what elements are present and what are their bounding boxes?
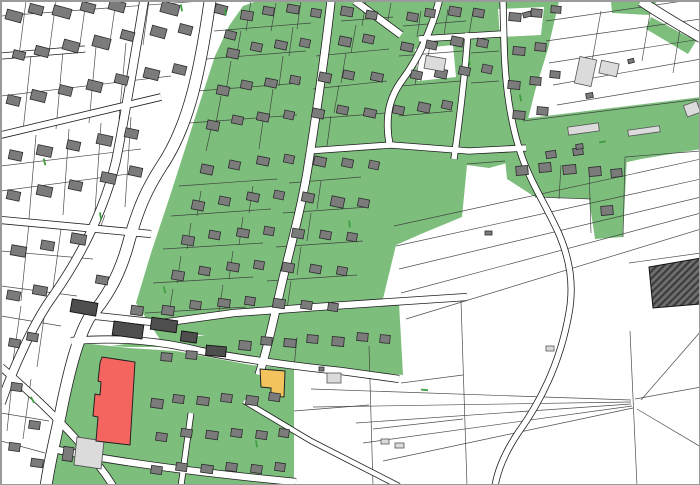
- building-footprint-dark: [206, 345, 227, 357]
- building-footprint: [380, 335, 391, 344]
- building-footprint: [300, 300, 312, 309]
- building-footprint: [255, 430, 267, 439]
- building-footprint: [230, 428, 242, 437]
- building-footprint: [417, 102, 431, 113]
- building-footprint: [130, 305, 143, 316]
- building-footprint: [268, 392, 280, 401]
- building-footprint: [8, 338, 20, 348]
- building-footprint: [336, 105, 348, 115]
- building-footprint: [273, 190, 284, 200]
- building-footprint: [226, 262, 239, 272]
- building-footprint: [95, 275, 108, 285]
- building-footprint: [191, 200, 205, 211]
- building-footprint: [231, 115, 243, 125]
- building-footprint: [289, 75, 300, 85]
- building-footprint: [330, 196, 345, 208]
- building-footprint: [272, 298, 285, 309]
- building-footprint: [262, 6, 274, 16]
- building-footprint: [172, 394, 184, 403]
- building-footprint: [424, 8, 435, 18]
- building-footprint: [513, 46, 526, 55]
- building-footprint: [362, 34, 374, 44]
- building-footprint: [28, 420, 40, 429]
- building-footprint: [551, 6, 562, 14]
- building-footprint: [70, 233, 87, 245]
- building-footprint: [8, 442, 20, 451]
- building-footprint: [31, 458, 44, 468]
- building-footprint: [244, 296, 255, 305]
- building-footprint: [189, 300, 201, 309]
- building-footprint: [245, 395, 258, 406]
- building-footprint: [425, 40, 437, 50]
- building-footprint: [458, 66, 470, 76]
- building-footprint: [180, 428, 192, 437]
- building-footprint: [472, 8, 484, 18]
- building-footprint: [200, 164, 214, 175]
- building-footprint: [342, 70, 354, 80]
- building-footprint: [450, 36, 464, 47]
- building-footprint: [171, 270, 184, 281]
- building-footprint: [310, 8, 321, 18]
- building-footprint: [26, 332, 38, 342]
- building-footprint: [341, 158, 353, 168]
- building-footprint: [236, 228, 249, 238]
- building-footprint: [550, 71, 561, 79]
- building-footprint: [150, 465, 162, 474]
- building-footprint: [228, 160, 240, 170]
- building-footprint: [239, 340, 252, 350]
- building-footprint: [250, 42, 262, 52]
- building-footprint: [586, 92, 594, 98]
- building-footprint: [576, 143, 584, 149]
- building-footprint-light: [546, 346, 554, 351]
- building-footprint: [253, 260, 264, 270]
- building-footprint: [365, 10, 377, 20]
- building-footprint-light: [381, 439, 389, 444]
- building-footprint: [201, 464, 214, 474]
- building-footprint: [485, 231, 492, 235]
- building-footprint: [563, 164, 577, 174]
- building-footprint: [250, 464, 262, 473]
- building-footprint: [530, 77, 542, 86]
- building-footprint-light: [327, 373, 341, 383]
- building-footprint: [286, 4, 299, 14]
- building-footprint: [539, 162, 552, 172]
- building-footprint: [476, 38, 488, 48]
- map-viewport[interactable]: [0, 0, 700, 485]
- building-footprint: [537, 107, 549, 116]
- building-footprint: [216, 85, 230, 96]
- building-footprint: [283, 110, 294, 120]
- building-footprint: [283, 154, 294, 164]
- building-footprint: [32, 285, 47, 296]
- building-footprint: [181, 235, 194, 246]
- building-footprint: [206, 430, 219, 440]
- building-footprint: [225, 462, 237, 471]
- building-footprint: [535, 43, 547, 52]
- building-footprint: [601, 205, 614, 215]
- building-footprint: [546, 150, 557, 158]
- building-footprint: [301, 192, 315, 203]
- building-footprint: [10, 382, 22, 391]
- building-footprint: [226, 48, 240, 59]
- building-footprint: [516, 165, 529, 175]
- building-footprint: [263, 226, 274, 236]
- building-footprint: [218, 196, 230, 206]
- building-footprint: [240, 10, 253, 21]
- building-footprint: [291, 228, 304, 239]
- building-footprint: [62, 446, 74, 461]
- building-footprint: [161, 353, 173, 362]
- building-footprint: [531, 9, 543, 18]
- building-footprint: [197, 396, 210, 406]
- building-footprint: [406, 12, 418, 22]
- building-footprint: [206, 120, 220, 131]
- building-footprint: [309, 264, 321, 274]
- building-footprint: [441, 100, 452, 110]
- building-footprint: [319, 367, 324, 371]
- building-footprint: [261, 337, 273, 346]
- hatched-parcel: [649, 258, 700, 308]
- building-footprint: [284, 338, 297, 347]
- building-footprint: [368, 160, 379, 170]
- building-footprint: [357, 333, 369, 342]
- building-footprint: [319, 230, 331, 240]
- building-footprint: [410, 70, 422, 80]
- building-footprint: [336, 266, 347, 276]
- building-footprint: [274, 462, 285, 471]
- building-footprint: [357, 198, 369, 208]
- building-footprint: [513, 110, 526, 119]
- map-canvas[interactable]: [1, 1, 700, 485]
- building-footprint: [175, 462, 187, 471]
- building-footprint: [611, 169, 623, 178]
- building-footprint: [6, 290, 20, 301]
- building-footprint: [281, 262, 294, 273]
- building-footprint: [240, 80, 252, 90]
- building-footprint: [150, 398, 163, 409]
- building-footprint: [481, 64, 492, 74]
- building-footprint: [186, 351, 198, 360]
- building-footprint: [327, 302, 338, 311]
- building-footprint: [346, 232, 357, 242]
- building-footprint: [332, 336, 345, 346]
- building-footprint: [338, 36, 352, 47]
- building-footprint: [299, 38, 310, 48]
- building-footprint: [508, 80, 521, 89]
- building-footprint: [311, 108, 325, 119]
- building-footprint: [218, 298, 231, 308]
- building-footprint: [155, 432, 167, 441]
- building-footprint-dark: [180, 331, 197, 343]
- building-footprint: [340, 6, 353, 17]
- building-footprint: [307, 335, 319, 344]
- building-footprint: [161, 305, 174, 316]
- building-footprint: [208, 230, 220, 240]
- building-footprint: [313, 156, 327, 167]
- building-footprint: [318, 72, 332, 83]
- building-footprint: [589, 166, 602, 176]
- building-footprint: [509, 12, 522, 21]
- building-footprint: [278, 428, 289, 437]
- building-footprint: [10, 245, 27, 257]
- building-footprint: [40, 240, 54, 251]
- building-footprint: [198, 266, 210, 276]
- building-footprint: [448, 6, 461, 17]
- building-footprint: [392, 105, 404, 115]
- building-footprint-light: [395, 443, 404, 448]
- red-public-building: [93, 357, 135, 445]
- building-footprint: [220, 393, 232, 402]
